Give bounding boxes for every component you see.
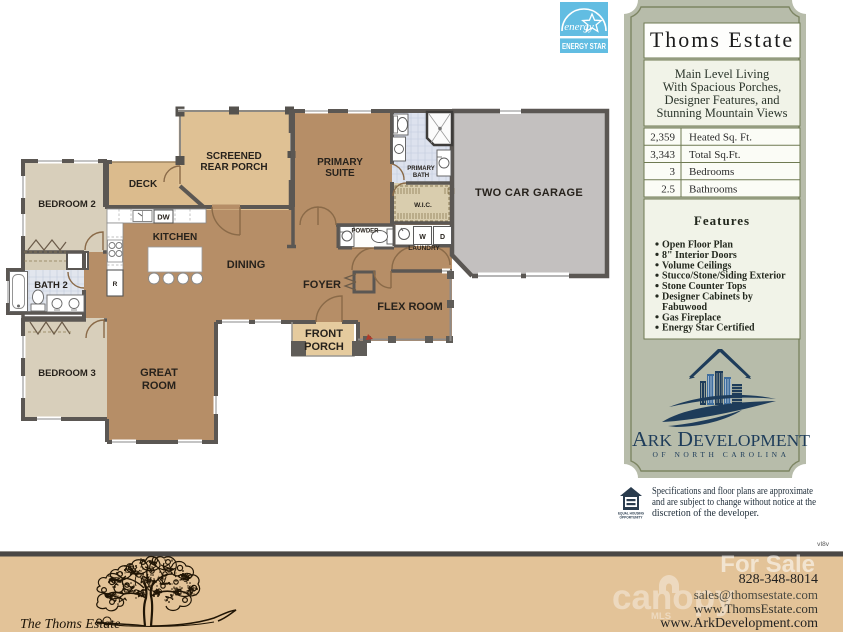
svg-text:PORCH: PORCH — [304, 341, 344, 353]
svg-text:FRONT: FRONT — [305, 328, 343, 340]
svg-text:Designer Features, and: Designer Features, and — [665, 93, 781, 107]
svg-text:W.I.C.: W.I.C. — [414, 202, 432, 209]
svg-text:energy: energy — [564, 21, 594, 33]
svg-text:OF NORTH CAROLINA: OF NORTH CAROLINA — [653, 450, 790, 459]
svg-text:2.5: 2.5 — [661, 183, 675, 195]
svg-text:With Spacious Porches,: With Spacious Porches, — [663, 80, 782, 94]
svg-text:Gas Fireplace: Gas Fireplace — [662, 312, 722, 323]
svg-text:discretion of the developer.: discretion of the developer. — [652, 508, 759, 519]
svg-text:8" Interior Doors: 8" Interior Doors — [662, 250, 737, 261]
svg-text:Main Level Living: Main Level Living — [675, 67, 770, 81]
svg-text:Stucco/Stone/Siding Exterior: Stucco/Stone/Siding Exterior — [662, 271, 786, 282]
svg-text:Open Floor Plan: Open Floor Plan — [662, 240, 733, 251]
svg-text:The Thoms Estate: The Thoms Estate — [20, 617, 120, 632]
svg-text:BEDROOM 3: BEDROOM 3 — [38, 368, 96, 379]
svg-text:Thoms Estate: Thoms Estate — [650, 27, 794, 52]
svg-text:DW: DW — [157, 213, 170, 222]
svg-text:ENERGY STAR: ENERGY STAR — [562, 42, 606, 51]
svg-text:FLEX ROOM: FLEX ROOM — [377, 301, 442, 313]
svg-text:BATH: BATH — [413, 173, 429, 179]
svg-text:Stunning Mountain Views: Stunning Mountain Views — [657, 106, 788, 120]
svg-text:and are subject to change with: and are subject to change without notice… — [652, 497, 816, 508]
svg-text:Volume Ceilings: Volume Ceilings — [662, 260, 731, 271]
svg-text:POWDER: POWDER — [352, 229, 380, 235]
svg-text:FOYER: FOYER — [303, 279, 341, 291]
svg-text:sales@thomsestate.com: sales@thomsestate.com — [694, 587, 818, 602]
svg-text:3: 3 — [670, 166, 676, 178]
svg-text:TWO CAR GARAGE: TWO CAR GARAGE — [475, 187, 583, 199]
svg-text:DECK: DECK — [129, 179, 158, 190]
svg-text:Specifications and floor plans: Specifications and floor plans are appro… — [652, 486, 813, 497]
svg-text:3,343: 3,343 — [650, 149, 675, 161]
svg-text:D: D — [440, 234, 445, 241]
svg-text:Stone Counter Tops: Stone Counter Tops — [662, 281, 746, 292]
svg-text:Designer Cabinets by: Designer Cabinets by — [662, 292, 753, 303]
svg-text:PRIMARY: PRIMARY — [407, 166, 434, 172]
svg-text:KITCHEN: KITCHEN — [153, 232, 197, 243]
svg-text:www.ThomsEstate.com: www.ThomsEstate.com — [694, 601, 818, 616]
svg-text:ROOM: ROOM — [142, 380, 176, 392]
svg-text:SUITE: SUITE — [325, 168, 355, 179]
svg-text:PRIMARY: PRIMARY — [317, 157, 363, 168]
svg-text:OPPORTUNITY: OPPORTUNITY — [620, 516, 644, 520]
svg-text:ARK DEVELOPMENT: ARK DEVELOPMENT — [632, 427, 811, 451]
svg-text:BATH 2: BATH 2 — [34, 280, 68, 291]
svg-text:GREAT: GREAT — [140, 367, 178, 379]
svg-text:Bathrooms: Bathrooms — [689, 183, 737, 195]
svg-text:Total Sq.Ft.: Total Sq.Ft. — [689, 149, 741, 161]
svg-text:BEDROOM 2: BEDROOM 2 — [38, 199, 96, 210]
svg-text:vI8v: vI8v — [817, 541, 830, 548]
svg-text:2,359: 2,359 — [650, 132, 675, 144]
svg-text:SCREENED: SCREENED — [206, 151, 262, 162]
svg-text:Energy Star Certified: Energy Star Certified — [662, 323, 755, 334]
svg-text:REAR PORCH: REAR PORCH — [200, 162, 267, 173]
svg-text:Heated Sq. Ft.: Heated Sq. Ft. — [689, 132, 752, 144]
svg-text:www.ArkDevelopment.com: www.ArkDevelopment.com — [660, 616, 818, 631]
svg-text:828-348-8014: 828-348-8014 — [739, 572, 818, 587]
svg-text:Fabuwood: Fabuwood — [662, 302, 707, 313]
svg-text:R: R — [113, 281, 118, 288]
svg-text:W: W — [419, 234, 426, 241]
svg-text:DINING: DINING — [227, 259, 266, 271]
svg-text:Bedrooms: Bedrooms — [689, 166, 734, 178]
svg-text:LAUNDRY: LAUNDRY — [408, 245, 440, 252]
svg-text:Features: Features — [694, 213, 750, 228]
